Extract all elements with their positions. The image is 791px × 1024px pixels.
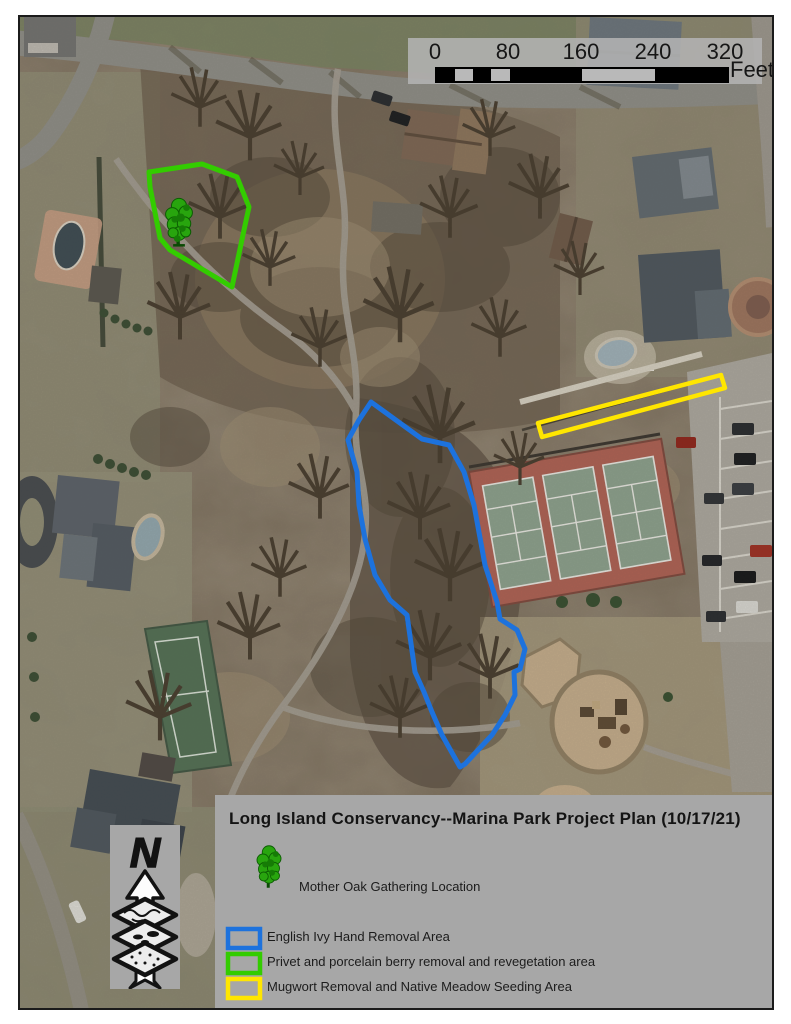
scale-tick: 0 bbox=[429, 39, 441, 65]
scale-bar-rule bbox=[435, 67, 729, 83]
privet-swatch bbox=[225, 951, 263, 976]
scale-unit-label: Feet bbox=[730, 57, 774, 83]
map-frame: 0 80 160 240 320 Feet N bbox=[18, 15, 774, 1010]
mugwort-swatch bbox=[225, 976, 263, 1001]
legend-item-mugwort: Mugwort Removal and Native Meadow Seedin… bbox=[225, 976, 765, 1001]
legend-title: Long Island Conservancy--Marina Park Pro… bbox=[229, 809, 764, 829]
map-page: 0 80 160 240 320 Feet N bbox=[0, 0, 791, 1024]
legend-item-privet: Privet and porcelain berry removal and r… bbox=[225, 951, 765, 976]
scale-tick: 80 bbox=[496, 39, 520, 65]
north-arrow-graphic: N bbox=[110, 825, 180, 989]
english-ivy-swatch bbox=[225, 926, 263, 951]
legend-item-label: Mugwort Removal and Native Meadow Seedin… bbox=[267, 979, 572, 994]
north-arrow-panel: N bbox=[110, 825, 180, 989]
legend-item-label: English Ivy Hand Removal Area bbox=[267, 929, 450, 944]
scale-tick: 160 bbox=[563, 39, 600, 65]
north-label: N bbox=[130, 829, 162, 876]
scale-bar: 0 80 160 240 320 Feet bbox=[408, 38, 762, 84]
mother-oak-legend-icon bbox=[254, 839, 284, 893]
legend-oak-label: Mother Oak Gathering Location bbox=[299, 879, 480, 894]
legend-item-label: Privet and porcelain berry removal and r… bbox=[267, 954, 595, 969]
legend-panel: Long Island Conservancy--Marina Park Pro… bbox=[215, 795, 772, 1010]
legend-item-english-ivy: English Ivy Hand Removal Area bbox=[225, 926, 765, 951]
scale-tick: 240 bbox=[635, 39, 672, 65]
